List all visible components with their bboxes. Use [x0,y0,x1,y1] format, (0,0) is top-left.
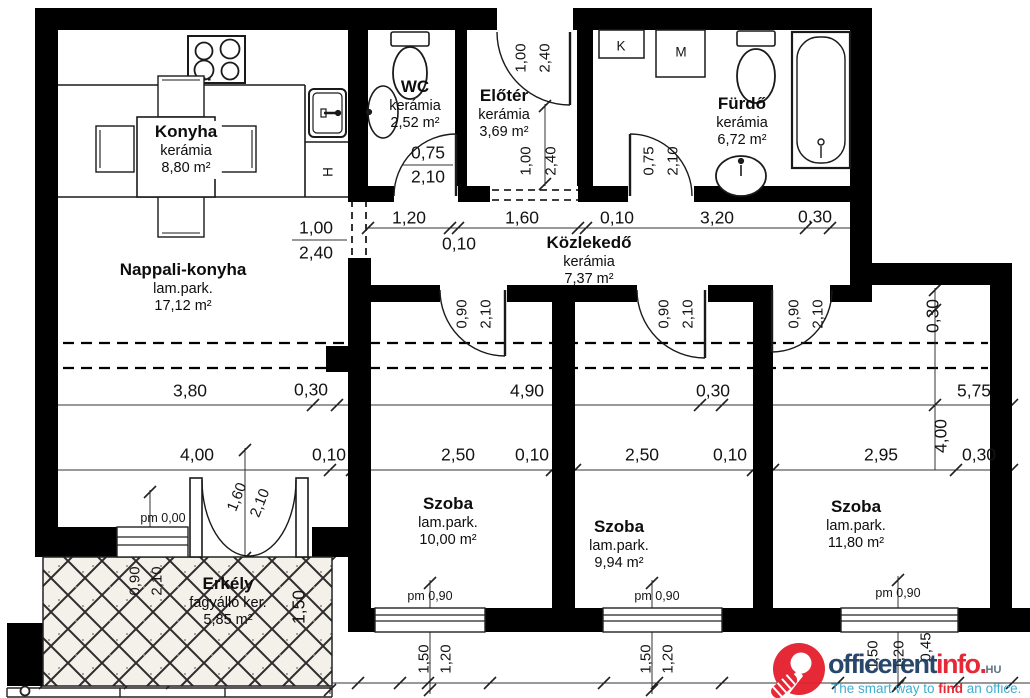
dim-label: 0,10 [515,446,549,464]
dim-label: 2,10 [150,566,165,595]
dim-label: 1,20 [661,644,676,673]
dim-label: 5,75 [957,382,991,400]
dim-label: 1,50 [290,590,308,624]
room-label-wc: WC kerámia 2,52 m² [389,77,441,133]
tagline-emphasis: find [938,681,963,696]
kitchen-sink-icon [309,89,346,137]
dim-label: 0,75 [642,146,657,175]
bedroom1-window [375,608,485,632]
brand-tld: HU [986,664,1002,676]
fridge-label: H [321,167,335,177]
parapet-label: pm 0,90 [407,590,452,603]
dim-label: 0,90 [787,299,802,328]
dim-label: 1,20 [392,209,426,227]
dim-label: 2,50 [441,446,475,464]
officerentinfo-icon [769,642,827,698]
room-label-erkely: Erkély fagyálló ker. 5,85 m² [189,574,266,630]
bath-sink-icon [716,156,766,196]
dim-label: 2,10 [411,168,445,186]
dim-label: 2,95 [864,446,898,464]
tagline-start: The smart way to [831,681,938,696]
parapet-label: pm 0,00 [140,512,185,525]
dim-label: 3,20 [700,209,734,227]
room-label-konyha: Konyha kerámia 8,80 m² [150,121,222,179]
dim-label: 0,30 [962,446,996,464]
dim-label: 2,10 [811,299,826,328]
dim-label: 3,80 [173,382,207,400]
wc-toilet-tank [391,32,429,46]
dim-label: 2,40 [299,244,333,262]
room-label-nappali: Nappali-konyha lam.park. 17,12 m² [120,260,247,316]
dim-label: 0,30 [924,299,942,333]
tagline-end: an office. [963,681,1021,696]
dim-label: 4,00 [932,419,950,453]
dim-label: 0,90 [455,299,470,328]
dim-label: 1,00 [519,146,534,175]
room-label-furdo: Fürdő kerámia 6,72 m² [716,94,768,150]
watermark-brand: officerentinfo.HU [828,649,1001,680]
dim-label: 2,40 [538,43,553,72]
dim-label: 1,50 [639,644,654,673]
dim-label: 0,90 [657,299,672,328]
floor-plan: Konyha kerámia 8,80 m² WC kerámia 2,52 m… [0,0,1030,698]
dim-label: 0,10 [713,446,747,464]
boiler-label: K [616,39,625,53]
dim-label: 0,10 [312,446,346,464]
brand-text-right: info. [936,649,985,679]
brand-text-left: officerent [828,649,936,679]
bedroom2-window [603,608,722,632]
dim-label: 1,50 [417,644,432,673]
bedroom1-door [440,290,505,356]
watermark-logo: officerentinfo.HU The smart way to find … [769,645,1030,698]
drain-symbol [21,687,30,696]
watermark-tagline: The smart way to find an office. [831,681,1021,696]
dim-label: 0,90 [128,566,143,595]
dim-label: 0,30 [798,208,832,226]
dim-label: 1,00 [299,219,333,237]
room-label-eloter: Előtér kerámia 3,69 m² [478,86,530,142]
balcony-hatch [7,557,332,697]
parapet-label: pm 0,90 [634,590,679,603]
dim-label: 1,00 [514,43,529,72]
bath-toilet-tank [737,31,775,46]
dim-label: 0,75 [411,144,445,162]
dim-label: 0,30 [696,382,730,400]
room-label-szoba2: Szoba lam.park. 9,94 m² [589,517,649,573]
living-room-window [117,527,188,557]
dim-label: 0,10 [600,209,634,227]
bathtub-icon [792,32,850,168]
dim-label: 2,10 [666,146,681,175]
washer-label: M [675,45,686,59]
dim-label: 0,30 [294,381,328,399]
dim-label: 2,10 [681,299,696,328]
dim-label: 4,90 [510,382,544,400]
room-label-szoba3: Szoba lam.park. 11,80 m² [826,497,886,553]
dim-label: 2,50 [625,446,659,464]
bedroom3-window [841,608,958,632]
room-label-kozlekedo: Közlekedő kerámia 7,37 m² [546,233,631,289]
dim-label: 4,00 [180,446,214,464]
dim-label: 1,60 [505,209,539,227]
bathroom-door [630,134,692,196]
parapet-label: pm 0,90 [875,587,920,600]
dim-label: 0,10 [442,235,476,253]
dim-label: 1,20 [439,644,454,673]
dim-label: 2,40 [544,146,559,175]
room-label-szoba1: Szoba lam.park. 10,00 m² [418,494,478,550]
dim-label: 2,10 [479,299,494,328]
